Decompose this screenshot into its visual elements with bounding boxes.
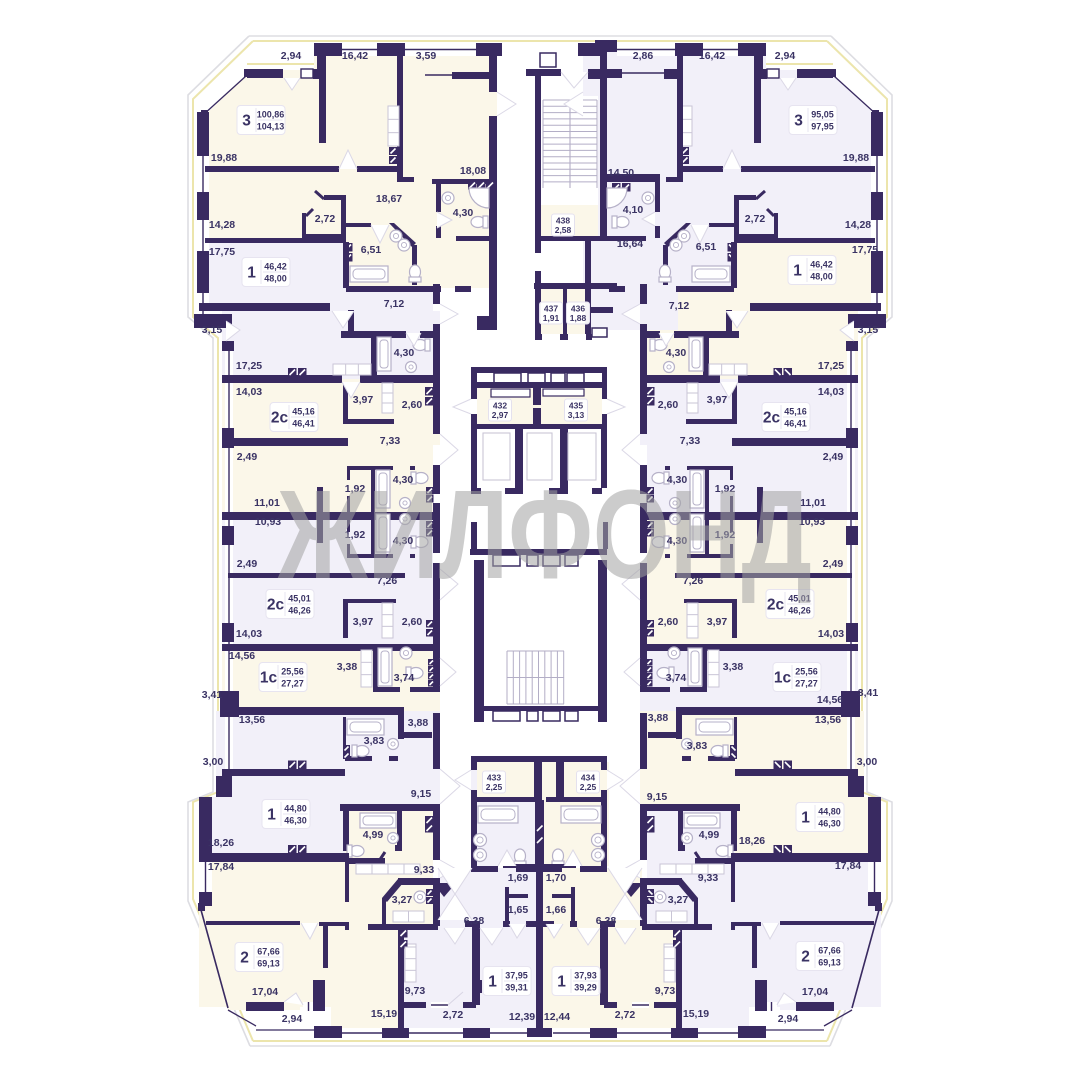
svg-text:9,73: 9,73 (405, 985, 426, 997)
svg-text:48,00: 48,00 (810, 272, 833, 282)
svg-text:2,94: 2,94 (778, 1013, 799, 1025)
svg-text:46,30: 46,30 (818, 819, 841, 829)
svg-text:14,56: 14,56 (817, 694, 843, 706)
svg-text:37,93: 37,93 (574, 971, 597, 981)
svg-text:435: 435 (569, 401, 583, 411)
svg-text:2,72: 2,72 (615, 1009, 636, 1021)
svg-text:16,64: 16,64 (617, 238, 643, 250)
svg-text:3,00: 3,00 (203, 756, 224, 768)
svg-text:97,95: 97,95 (811, 122, 834, 132)
svg-text:4,30: 4,30 (394, 347, 415, 359)
svg-text:3,27: 3,27 (668, 894, 689, 906)
svg-text:9,33: 9,33 (698, 872, 719, 884)
svg-text:2c: 2c (271, 410, 289, 427)
svg-text:6,51: 6,51 (361, 244, 382, 256)
svg-text:2,49: 2,49 (237, 558, 258, 570)
svg-text:17,04: 17,04 (802, 986, 828, 998)
svg-text:14,28: 14,28 (845, 219, 871, 231)
svg-text:46,42: 46,42 (264, 262, 287, 272)
svg-text:4,10: 4,10 (623, 204, 644, 216)
svg-text:4,99: 4,99 (699, 829, 720, 841)
svg-text:7,12: 7,12 (669, 300, 690, 312)
svg-text:1,69: 1,69 (508, 872, 529, 884)
svg-text:3: 3 (794, 113, 803, 130)
svg-text:9,33: 9,33 (414, 864, 435, 876)
svg-text:17,84: 17,84 (208, 861, 234, 873)
svg-text:12,39: 12,39 (509, 1011, 535, 1023)
svg-text:18,26: 18,26 (739, 835, 765, 847)
svg-text:1,88: 1,88 (570, 313, 587, 323)
svg-text:17,25: 17,25 (236, 360, 262, 372)
svg-text:2,60: 2,60 (658, 399, 679, 411)
svg-text:2c: 2c (763, 410, 781, 427)
svg-text:18,26: 18,26 (208, 837, 234, 849)
svg-text:3,88: 3,88 (648, 712, 669, 724)
svg-text:12,44: 12,44 (544, 1011, 570, 1023)
svg-text:3,13: 3,13 (568, 410, 585, 420)
svg-text:3,38: 3,38 (337, 661, 358, 673)
svg-text:14,03: 14,03 (236, 628, 262, 640)
svg-text:17,25: 17,25 (818, 360, 844, 372)
svg-text:3,97: 3,97 (353, 394, 374, 406)
svg-text:7,12: 7,12 (384, 298, 405, 310)
svg-text:2,60: 2,60 (658, 616, 679, 628)
svg-text:14,28: 14,28 (209, 219, 235, 231)
svg-text:27,27: 27,27 (281, 679, 304, 689)
svg-text:2,58: 2,58 (555, 225, 572, 235)
svg-text:95,05: 95,05 (811, 110, 834, 120)
svg-text:69,13: 69,13 (257, 959, 280, 969)
svg-text:17,84: 17,84 (835, 860, 861, 872)
svg-text:3,41: 3,41 (202, 689, 223, 701)
svg-text:2,60: 2,60 (402, 616, 423, 628)
svg-text:1: 1 (793, 263, 802, 280)
svg-text:2,97: 2,97 (492, 410, 509, 420)
svg-text:1: 1 (801, 810, 810, 827)
svg-text:9,15: 9,15 (411, 788, 432, 800)
svg-text:14,03: 14,03 (818, 628, 844, 640)
svg-text:46,30: 46,30 (284, 816, 307, 826)
svg-text:15,19: 15,19 (683, 1008, 709, 1020)
svg-text:46,26: 46,26 (288, 606, 311, 616)
svg-text:17,75: 17,75 (209, 246, 235, 258)
svg-text:2,60: 2,60 (402, 399, 423, 411)
svg-text:1,70: 1,70 (546, 872, 567, 884)
svg-text:25,56: 25,56 (795, 667, 818, 677)
svg-text:15,19: 15,19 (371, 1008, 397, 1020)
svg-text:7,33: 7,33 (680, 435, 701, 447)
svg-text:13,56: 13,56 (815, 714, 841, 726)
svg-text:3,15: 3,15 (858, 324, 879, 336)
svg-text:3,83: 3,83 (687, 740, 708, 752)
svg-text:2,72: 2,72 (315, 213, 336, 225)
svg-text:3,38: 3,38 (723, 661, 744, 673)
svg-text:2,49: 2,49 (823, 451, 844, 463)
svg-text:14,03: 14,03 (818, 386, 844, 398)
svg-text:2: 2 (801, 949, 810, 966)
svg-text:46,41: 46,41 (292, 419, 315, 429)
svg-text:432: 432 (493, 401, 507, 411)
svg-text:27,27: 27,27 (795, 679, 818, 689)
svg-text:3,88: 3,88 (408, 717, 429, 729)
svg-text:46,41: 46,41 (784, 419, 807, 429)
svg-text:45,16: 45,16 (292, 407, 315, 417)
svg-text:19,88: 19,88 (211, 152, 237, 164)
svg-text:45,16: 45,16 (784, 407, 807, 417)
svg-text:44,80: 44,80 (284, 804, 307, 814)
svg-text:3,97: 3,97 (353, 616, 374, 628)
svg-text:6,51: 6,51 (696, 241, 717, 253)
svg-text:1: 1 (557, 974, 566, 991)
svg-text:433: 433 (487, 773, 501, 783)
svg-text:2,49: 2,49 (237, 451, 258, 463)
svg-text:3,59: 3,59 (416, 50, 437, 62)
svg-text:437: 437 (544, 304, 558, 314)
svg-text:438: 438 (556, 216, 570, 226)
svg-text:13,56: 13,56 (239, 714, 265, 726)
svg-text:2,86: 2,86 (633, 50, 654, 62)
svg-text:69,13: 69,13 (818, 958, 841, 968)
svg-text:1,65: 1,65 (508, 904, 529, 916)
svg-text:2,94: 2,94 (281, 50, 302, 62)
svg-text:2,94: 2,94 (282, 1013, 303, 1025)
svg-text:3,15: 3,15 (202, 324, 223, 336)
svg-text:14,56: 14,56 (229, 650, 255, 662)
svg-text:46,42: 46,42 (810, 260, 833, 270)
svg-text:16,42: 16,42 (342, 50, 368, 62)
svg-text:9,73: 9,73 (655, 985, 676, 997)
svg-text:6,38: 6,38 (596, 915, 617, 927)
svg-text:3,00: 3,00 (857, 756, 878, 768)
svg-text:39,31: 39,31 (505, 983, 528, 993)
svg-text:37,95: 37,95 (505, 971, 528, 981)
svg-text:2,49: 2,49 (823, 558, 844, 570)
svg-text:3,74: 3,74 (394, 672, 415, 684)
svg-text:17,04: 17,04 (252, 986, 278, 998)
svg-text:6,38: 6,38 (464, 915, 485, 927)
svg-text:3,83: 3,83 (364, 735, 385, 747)
svg-text:3,27: 3,27 (392, 894, 413, 906)
svg-text:ЖИЛФОНД: ЖИЛФОНД (277, 464, 812, 605)
svg-text:7,33: 7,33 (380, 435, 401, 447)
svg-text:1: 1 (247, 265, 256, 282)
svg-text:1,91: 1,91 (543, 313, 560, 323)
svg-text:1c: 1c (260, 670, 278, 687)
svg-text:48,00: 48,00 (264, 274, 287, 284)
svg-text:16,42: 16,42 (699, 50, 725, 62)
svg-text:3,41: 3,41 (858, 687, 879, 699)
svg-text:44,80: 44,80 (818, 807, 841, 817)
svg-text:2,72: 2,72 (745, 213, 766, 225)
svg-text:39,29: 39,29 (574, 983, 597, 993)
svg-text:2,72: 2,72 (443, 1009, 464, 1021)
svg-text:2,94: 2,94 (775, 50, 796, 62)
svg-text:14,50: 14,50 (608, 167, 634, 179)
svg-text:17,75: 17,75 (852, 244, 878, 256)
svg-text:1: 1 (267, 807, 276, 824)
svg-text:2: 2 (240, 950, 249, 967)
svg-text:18,08: 18,08 (460, 165, 486, 177)
svg-text:434: 434 (581, 773, 595, 783)
svg-text:3: 3 (242, 113, 251, 130)
svg-text:2,25: 2,25 (580, 782, 597, 792)
svg-text:25,56: 25,56 (281, 667, 304, 677)
svg-text:3,97: 3,97 (707, 394, 728, 406)
svg-text:3,74: 3,74 (666, 672, 687, 684)
svg-text:1c: 1c (774, 670, 792, 687)
svg-text:18,67: 18,67 (376, 193, 402, 205)
svg-text:19,88: 19,88 (843, 152, 869, 164)
svg-text:14,03: 14,03 (236, 386, 262, 398)
svg-text:3,97: 3,97 (707, 616, 728, 628)
svg-text:1,66: 1,66 (546, 904, 567, 916)
svg-text:436: 436 (571, 304, 585, 314)
svg-text:11,01: 11,01 (254, 497, 280, 509)
svg-text:4,30: 4,30 (666, 347, 687, 359)
svg-text:1: 1 (488, 974, 497, 991)
svg-text:46,26: 46,26 (788, 606, 811, 616)
svg-text:67,66: 67,66 (257, 947, 280, 957)
svg-text:2,25: 2,25 (486, 782, 503, 792)
svg-text:4,99: 4,99 (363, 829, 384, 841)
svg-text:100,86: 100,86 (257, 110, 285, 120)
svg-text:104,13: 104,13 (257, 122, 285, 132)
svg-text:4,30: 4,30 (453, 207, 474, 219)
svg-text:67,66: 67,66 (818, 946, 841, 956)
svg-text:9,15: 9,15 (647, 791, 668, 803)
